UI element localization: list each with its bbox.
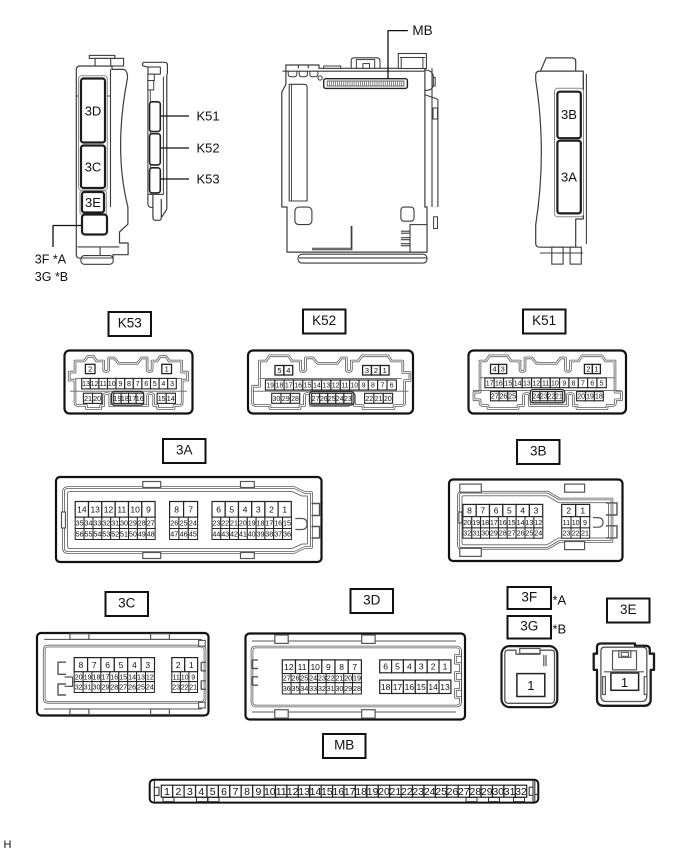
svg-text:19: 19 bbox=[472, 518, 480, 527]
svg-text:18: 18 bbox=[276, 383, 284, 390]
svg-text:13: 13 bbox=[322, 383, 330, 390]
svg-text:40: 40 bbox=[248, 530, 256, 539]
svg-text:3B: 3B bbox=[561, 107, 577, 122]
svg-text:10: 10 bbox=[350, 383, 358, 390]
svg-text:4: 4 bbox=[286, 366, 290, 375]
svg-text:4: 4 bbox=[520, 506, 525, 516]
svg-text:17: 17 bbox=[486, 380, 494, 387]
svg-text:7: 7 bbox=[92, 660, 97, 670]
svg-text:6: 6 bbox=[221, 786, 227, 798]
svg-text:7: 7 bbox=[188, 504, 193, 514]
svg-text:MB: MB bbox=[412, 23, 432, 38]
svg-text:25: 25 bbox=[328, 396, 336, 403]
svg-text:16: 16 bbox=[499, 518, 507, 527]
svg-text:17: 17 bbox=[490, 518, 498, 527]
svg-text:1: 1 bbox=[527, 678, 534, 693]
svg-text:3: 3 bbox=[534, 506, 539, 516]
svg-text:27: 27 bbox=[283, 674, 291, 683]
svg-text:34: 34 bbox=[300, 684, 308, 693]
svg-text:15: 15 bbox=[283, 518, 291, 527]
svg-text:19: 19 bbox=[353, 674, 361, 683]
svg-text:9: 9 bbox=[191, 672, 195, 681]
svg-text:5: 5 bbox=[229, 504, 234, 514]
svg-text:*A: *A bbox=[553, 593, 567, 608]
svg-text:18: 18 bbox=[257, 518, 265, 527]
svg-text:12: 12 bbox=[532, 380, 540, 387]
svg-text:11: 11 bbox=[298, 662, 307, 672]
svg-text:K53: K53 bbox=[118, 315, 142, 330]
svg-text:29: 29 bbox=[490, 529, 498, 538]
svg-text:14: 14 bbox=[128, 672, 136, 681]
svg-text:21: 21 bbox=[84, 394, 92, 403]
svg-text:20: 20 bbox=[239, 518, 247, 527]
svg-text:10: 10 bbox=[264, 786, 276, 798]
svg-text:15: 15 bbox=[508, 518, 516, 527]
svg-text:12: 12 bbox=[91, 379, 99, 388]
svg-text:29: 29 bbox=[282, 396, 290, 403]
svg-text:22: 22 bbox=[181, 683, 189, 692]
svg-text:21: 21 bbox=[335, 674, 343, 683]
svg-text:29: 29 bbox=[101, 683, 109, 692]
svg-text:28: 28 bbox=[138, 518, 146, 527]
svg-text:28: 28 bbox=[110, 683, 118, 692]
svg-text:4: 4 bbox=[493, 365, 497, 374]
svg-text:1: 1 bbox=[164, 786, 170, 798]
svg-text:18: 18 bbox=[355, 786, 367, 798]
svg-text:24: 24 bbox=[146, 683, 154, 692]
svg-text:23: 23 bbox=[212, 518, 220, 527]
svg-text:26: 26 bbox=[170, 518, 178, 527]
svg-text:2: 2 bbox=[176, 660, 181, 670]
svg-text:12: 12 bbox=[287, 786, 299, 798]
svg-text:9: 9 bbox=[562, 380, 566, 387]
svg-text:31: 31 bbox=[84, 683, 92, 692]
svg-text:26: 26 bbox=[292, 674, 300, 683]
svg-text:8: 8 bbox=[79, 660, 84, 670]
svg-text:14: 14 bbox=[167, 394, 175, 403]
svg-text:31: 31 bbox=[504, 786, 516, 798]
svg-text:14: 14 bbox=[517, 518, 525, 527]
svg-text:50: 50 bbox=[129, 530, 137, 539]
svg-text:6: 6 bbox=[590, 380, 594, 387]
svg-text:4: 4 bbox=[132, 660, 137, 670]
svg-text:8: 8 bbox=[127, 379, 131, 388]
svg-text:19: 19 bbox=[266, 383, 274, 390]
svg-text:11: 11 bbox=[117, 504, 126, 514]
svg-text:24: 24 bbox=[336, 396, 344, 403]
svg-text:15: 15 bbox=[304, 383, 312, 390]
svg-text:11: 11 bbox=[341, 383, 348, 390]
svg-text:8: 8 bbox=[339, 662, 344, 672]
svg-text:16: 16 bbox=[332, 786, 344, 798]
svg-text:H: H bbox=[4, 839, 12, 851]
svg-text:28: 28 bbox=[291, 396, 299, 403]
svg-text:22: 22 bbox=[365, 396, 373, 403]
svg-text:K51: K51 bbox=[532, 313, 556, 328]
svg-text:15: 15 bbox=[158, 394, 166, 403]
svg-text:18: 18 bbox=[93, 672, 101, 681]
svg-text:21: 21 bbox=[581, 529, 589, 538]
svg-text:33: 33 bbox=[309, 684, 317, 693]
svg-text:10: 10 bbox=[181, 672, 189, 681]
svg-text:20: 20 bbox=[344, 674, 352, 683]
svg-text:13: 13 bbox=[90, 504, 100, 514]
svg-text:38: 38 bbox=[265, 530, 273, 539]
svg-text:7: 7 bbox=[581, 380, 585, 387]
svg-text:39: 39 bbox=[257, 530, 265, 539]
svg-text:20: 20 bbox=[378, 786, 390, 798]
svg-text:19: 19 bbox=[586, 394, 594, 401]
svg-text:22: 22 bbox=[327, 674, 335, 683]
svg-text:17: 17 bbox=[393, 682, 403, 692]
svg-text:16: 16 bbox=[274, 518, 282, 527]
svg-text:9: 9 bbox=[118, 379, 122, 388]
svg-text:14: 14 bbox=[310, 786, 322, 798]
svg-text:44: 44 bbox=[212, 530, 220, 539]
svg-text:19: 19 bbox=[248, 518, 256, 527]
svg-text:28: 28 bbox=[353, 684, 361, 693]
svg-text:26: 26 bbox=[320, 396, 328, 403]
svg-text:20: 20 bbox=[463, 518, 471, 527]
svg-text:21: 21 bbox=[189, 683, 197, 692]
svg-text:20: 20 bbox=[577, 394, 585, 401]
svg-text:31: 31 bbox=[472, 529, 480, 538]
svg-text:29: 29 bbox=[481, 786, 493, 798]
svg-text:5: 5 bbox=[507, 506, 512, 516]
svg-text:36: 36 bbox=[283, 684, 291, 693]
svg-text:34: 34 bbox=[85, 518, 93, 527]
svg-text:3B: 3B bbox=[530, 443, 547, 458]
svg-text:48: 48 bbox=[147, 530, 155, 539]
svg-text:5: 5 bbox=[119, 660, 124, 670]
svg-text:7: 7 bbox=[233, 786, 239, 798]
svg-text:3G *B: 3G *B bbox=[35, 270, 68, 284]
svg-text:24: 24 bbox=[309, 674, 317, 683]
svg-text:27: 27 bbox=[508, 529, 516, 538]
svg-text:4: 4 bbox=[161, 379, 165, 388]
svg-text:18: 18 bbox=[595, 394, 603, 401]
svg-text:24: 24 bbox=[534, 529, 542, 538]
svg-text:16: 16 bbox=[294, 383, 302, 390]
svg-text:32: 32 bbox=[102, 518, 110, 527]
svg-text:35: 35 bbox=[76, 518, 84, 527]
svg-text:52: 52 bbox=[111, 530, 119, 539]
svg-text:1: 1 bbox=[621, 675, 628, 690]
svg-text:5: 5 bbox=[277, 366, 281, 375]
svg-text:13: 13 bbox=[440, 682, 450, 692]
svg-text:5: 5 bbox=[210, 786, 216, 798]
svg-text:10: 10 bbox=[130, 504, 140, 514]
svg-text:1: 1 bbox=[165, 365, 169, 374]
svg-text:1: 1 bbox=[443, 661, 448, 671]
svg-text:3C: 3C bbox=[118, 595, 136, 610]
svg-text:3G: 3G bbox=[520, 619, 538, 634]
svg-text:30: 30 bbox=[335, 684, 343, 693]
svg-text:2: 2 bbox=[374, 366, 378, 375]
svg-text:9: 9 bbox=[362, 383, 366, 390]
svg-text:49: 49 bbox=[138, 530, 146, 539]
svg-text:3F: 3F bbox=[521, 589, 537, 604]
svg-text:10: 10 bbox=[108, 379, 116, 388]
svg-text:24: 24 bbox=[189, 518, 197, 527]
svg-text:3: 3 bbox=[145, 660, 150, 670]
svg-text:25: 25 bbox=[180, 518, 188, 527]
svg-text:24: 24 bbox=[424, 786, 436, 798]
svg-text:6: 6 bbox=[494, 506, 499, 516]
svg-text:43: 43 bbox=[221, 530, 229, 539]
svg-text:45: 45 bbox=[189, 530, 197, 539]
svg-text:5: 5 bbox=[600, 380, 604, 387]
svg-text:30: 30 bbox=[273, 396, 281, 403]
svg-text:51: 51 bbox=[120, 530, 128, 539]
svg-text:56: 56 bbox=[76, 530, 84, 539]
svg-text:23: 23 bbox=[172, 683, 180, 692]
svg-text:32: 32 bbox=[463, 529, 471, 538]
svg-text:29: 29 bbox=[129, 518, 137, 527]
svg-text:3: 3 bbox=[256, 504, 261, 514]
svg-text:12: 12 bbox=[332, 383, 340, 390]
svg-text:K51: K51 bbox=[197, 109, 220, 124]
svg-text:29: 29 bbox=[344, 684, 352, 693]
svg-text:1: 1 bbox=[580, 506, 585, 516]
svg-text:8: 8 bbox=[174, 504, 179, 514]
svg-text:28: 28 bbox=[469, 786, 481, 798]
svg-text:37: 37 bbox=[274, 530, 282, 539]
svg-text:13: 13 bbox=[523, 380, 531, 387]
svg-text:12: 12 bbox=[104, 504, 114, 514]
svg-text:47: 47 bbox=[170, 530, 178, 539]
svg-text:11: 11 bbox=[172, 672, 179, 681]
svg-text:17: 17 bbox=[344, 786, 356, 798]
svg-text:21: 21 bbox=[230, 518, 238, 527]
svg-text:16: 16 bbox=[405, 682, 415, 692]
svg-text:26: 26 bbox=[517, 529, 525, 538]
svg-text:10: 10 bbox=[310, 662, 320, 672]
svg-text:1: 1 bbox=[282, 504, 287, 514]
svg-text:1: 1 bbox=[383, 366, 387, 375]
svg-text:*B: *B bbox=[553, 622, 567, 637]
svg-text:12: 12 bbox=[534, 518, 542, 527]
svg-text:3D: 3D bbox=[85, 104, 102, 119]
svg-text:3: 3 bbox=[365, 366, 369, 375]
svg-text:14: 14 bbox=[313, 383, 321, 390]
svg-text:23: 23 bbox=[318, 674, 326, 683]
svg-text:17: 17 bbox=[285, 383, 293, 390]
svg-text:4: 4 bbox=[407, 661, 412, 671]
svg-text:2: 2 bbox=[88, 365, 92, 374]
svg-text:7: 7 bbox=[352, 662, 357, 672]
svg-text:6: 6 bbox=[383, 661, 388, 671]
svg-text:32: 32 bbox=[75, 683, 83, 692]
svg-text:8: 8 bbox=[572, 380, 576, 387]
svg-text:3A: 3A bbox=[176, 442, 193, 457]
svg-text:12: 12 bbox=[146, 672, 154, 681]
svg-text:21: 21 bbox=[555, 394, 563, 401]
svg-text:6: 6 bbox=[105, 660, 110, 670]
svg-text:27: 27 bbox=[458, 786, 470, 798]
svg-text:9: 9 bbox=[326, 662, 331, 672]
svg-text:15: 15 bbox=[321, 786, 333, 798]
svg-text:27: 27 bbox=[312, 396, 320, 403]
svg-text:31: 31 bbox=[327, 684, 335, 693]
svg-text:19: 19 bbox=[84, 672, 92, 681]
svg-text:4: 4 bbox=[243, 504, 248, 514]
svg-text:11: 11 bbox=[542, 380, 549, 387]
svg-text:25: 25 bbox=[525, 529, 533, 538]
svg-text:54: 54 bbox=[93, 530, 101, 539]
svg-text:6: 6 bbox=[144, 379, 148, 388]
svg-text:9: 9 bbox=[583, 518, 587, 527]
svg-text:1: 1 bbox=[189, 660, 194, 670]
svg-text:35: 35 bbox=[292, 684, 300, 693]
svg-text:2: 2 bbox=[431, 661, 436, 671]
svg-text:3E: 3E bbox=[85, 195, 101, 210]
svg-text:11: 11 bbox=[99, 379, 106, 388]
svg-text:9: 9 bbox=[146, 504, 151, 514]
svg-text:30: 30 bbox=[93, 683, 101, 692]
svg-text:7: 7 bbox=[480, 506, 485, 516]
svg-text:3A: 3A bbox=[561, 170, 577, 185]
svg-text:18: 18 bbox=[381, 682, 391, 692]
svg-text:3D: 3D bbox=[363, 592, 381, 607]
svg-text:1: 1 bbox=[594, 365, 598, 374]
svg-text:15: 15 bbox=[416, 682, 426, 692]
svg-text:26: 26 bbox=[128, 683, 136, 692]
svg-text:13: 13 bbox=[82, 379, 90, 388]
svg-text:25: 25 bbox=[508, 394, 516, 401]
svg-text:46: 46 bbox=[180, 530, 188, 539]
svg-text:16: 16 bbox=[110, 672, 118, 681]
svg-text:15: 15 bbox=[504, 380, 512, 387]
svg-text:7: 7 bbox=[380, 383, 384, 390]
svg-text:8: 8 bbox=[371, 383, 375, 390]
svg-text:11: 11 bbox=[276, 786, 287, 798]
svg-text:10: 10 bbox=[551, 380, 559, 387]
svg-text:3: 3 bbox=[187, 786, 193, 798]
svg-text:2: 2 bbox=[175, 786, 181, 798]
svg-text:MB: MB bbox=[334, 737, 354, 752]
svg-text:13: 13 bbox=[137, 672, 145, 681]
svg-text:27: 27 bbox=[491, 394, 499, 401]
svg-text:K53: K53 bbox=[197, 172, 220, 187]
svg-text:26: 26 bbox=[500, 394, 508, 401]
svg-text:30: 30 bbox=[120, 518, 128, 527]
svg-text:27: 27 bbox=[147, 518, 155, 527]
svg-text:18: 18 bbox=[481, 518, 489, 527]
svg-text:33: 33 bbox=[93, 518, 101, 527]
svg-text:K52: K52 bbox=[197, 141, 220, 156]
svg-text:14: 14 bbox=[77, 504, 87, 514]
svg-text:9: 9 bbox=[255, 786, 261, 798]
svg-text:3: 3 bbox=[170, 379, 174, 388]
svg-text:23: 23 bbox=[562, 529, 570, 538]
svg-text:19: 19 bbox=[367, 786, 379, 798]
svg-text:2: 2 bbox=[269, 504, 274, 514]
svg-text:16: 16 bbox=[136, 394, 144, 403]
svg-text:8: 8 bbox=[467, 506, 472, 516]
svg-text:53: 53 bbox=[102, 530, 110, 539]
svg-text:6: 6 bbox=[390, 383, 394, 390]
svg-text:26: 26 bbox=[447, 786, 459, 798]
svg-text:8: 8 bbox=[244, 786, 250, 798]
svg-text:14: 14 bbox=[514, 380, 522, 387]
svg-text:15: 15 bbox=[119, 672, 127, 681]
svg-text:11: 11 bbox=[563, 518, 570, 527]
svg-text:13: 13 bbox=[525, 518, 533, 527]
svg-text:17: 17 bbox=[265, 518, 273, 527]
svg-text:25: 25 bbox=[435, 786, 447, 798]
svg-text:13: 13 bbox=[298, 786, 310, 798]
svg-text:31: 31 bbox=[111, 518, 119, 527]
svg-text:20: 20 bbox=[384, 396, 392, 403]
svg-text:41: 41 bbox=[239, 530, 247, 539]
svg-text:16: 16 bbox=[495, 380, 503, 387]
svg-text:22: 22 bbox=[221, 518, 229, 527]
svg-text:12: 12 bbox=[284, 662, 294, 672]
svg-text:6: 6 bbox=[216, 504, 221, 514]
svg-text:30: 30 bbox=[481, 529, 489, 538]
svg-text:20: 20 bbox=[93, 394, 101, 403]
svg-text:3F *A: 3F *A bbox=[35, 253, 67, 267]
svg-text:10: 10 bbox=[572, 518, 580, 527]
svg-text:3C: 3C bbox=[85, 160, 102, 175]
svg-text:5: 5 bbox=[153, 379, 157, 388]
svg-text:17: 17 bbox=[101, 672, 109, 681]
svg-text:27: 27 bbox=[119, 683, 127, 692]
svg-text:32: 32 bbox=[515, 786, 527, 798]
svg-text:55: 55 bbox=[85, 530, 93, 539]
svg-text:2: 2 bbox=[586, 365, 590, 374]
svg-text:K52: K52 bbox=[312, 313, 336, 328]
svg-text:2: 2 bbox=[566, 506, 571, 516]
svg-text:7: 7 bbox=[136, 379, 140, 388]
svg-text:25: 25 bbox=[137, 683, 145, 692]
svg-text:23: 23 bbox=[412, 786, 424, 798]
svg-text:5: 5 bbox=[395, 661, 400, 671]
svg-text:3: 3 bbox=[419, 661, 424, 671]
svg-text:25: 25 bbox=[300, 674, 308, 683]
svg-text:30: 30 bbox=[492, 786, 504, 798]
svg-text:36: 36 bbox=[283, 530, 291, 539]
svg-text:22: 22 bbox=[401, 786, 413, 798]
svg-text:4: 4 bbox=[198, 786, 204, 798]
svg-text:32: 32 bbox=[318, 684, 326, 693]
svg-text:22: 22 bbox=[572, 529, 580, 538]
svg-text:23: 23 bbox=[344, 396, 352, 403]
svg-text:21: 21 bbox=[375, 396, 383, 403]
svg-text:42: 42 bbox=[230, 530, 238, 539]
svg-text:21: 21 bbox=[390, 786, 402, 798]
svg-text:28: 28 bbox=[499, 529, 507, 538]
svg-text:3E: 3E bbox=[620, 602, 637, 617]
svg-text:3: 3 bbox=[501, 365, 505, 374]
svg-text:14: 14 bbox=[428, 682, 438, 692]
svg-text:20: 20 bbox=[75, 672, 83, 681]
